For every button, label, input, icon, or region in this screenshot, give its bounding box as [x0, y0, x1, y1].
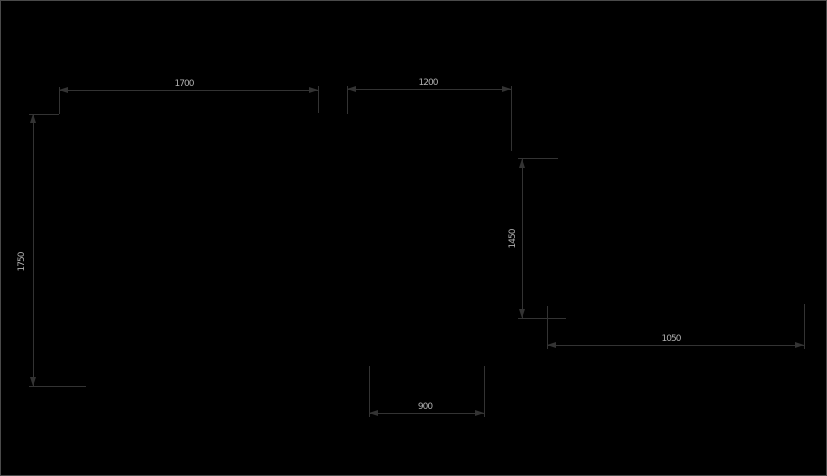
extension-line: [518, 318, 566, 319]
dim-arrow-right: [309, 87, 318, 93]
extension-line: [547, 306, 548, 349]
dim-label: 900: [418, 402, 432, 412]
dim-label: 1200: [419, 78, 438, 88]
extension-line: [29, 386, 86, 387]
dim-arrow-left: [347, 86, 356, 92]
dim-arrow-left: [369, 410, 378, 416]
extension-line: [518, 158, 558, 159]
dim-arrow-left: [59, 87, 68, 93]
extension-line: [29, 114, 59, 115]
dim-label: 1750: [17, 253, 27, 272]
extension-line: [59, 87, 60, 114]
extension-line: [804, 304, 805, 349]
extension-line: [347, 86, 348, 114]
extension-line: [369, 366, 370, 417]
cad-drawing-canvas[interactable]: 1700 1200 1750 1450 1050: [0, 0, 827, 476]
dimension-line: [547, 345, 804, 346]
dim-arrow-right: [502, 86, 511, 92]
dimension-line: [522, 159, 523, 318]
dim-arrow-left: [547, 342, 556, 348]
dim-arrow-up: [30, 114, 36, 123]
dim-arrow-down: [519, 309, 525, 318]
extension-line: [484, 366, 485, 417]
dim-label: 1700: [175, 79, 194, 89]
dimension-line: [369, 413, 484, 414]
extension-line: [511, 86, 512, 151]
dim-arrow-right: [795, 342, 804, 348]
dimension-line: [59, 90, 318, 91]
dim-arrow-down: [30, 377, 36, 386]
dim-label: 1450: [508, 230, 518, 249]
dimension-line: [347, 89, 511, 90]
dim-label: 1050: [662, 334, 681, 344]
dimension-line: [33, 114, 34, 386]
dim-arrow-right: [475, 410, 484, 416]
extension-line: [318, 86, 319, 113]
dim-arrow-up: [519, 159, 525, 168]
